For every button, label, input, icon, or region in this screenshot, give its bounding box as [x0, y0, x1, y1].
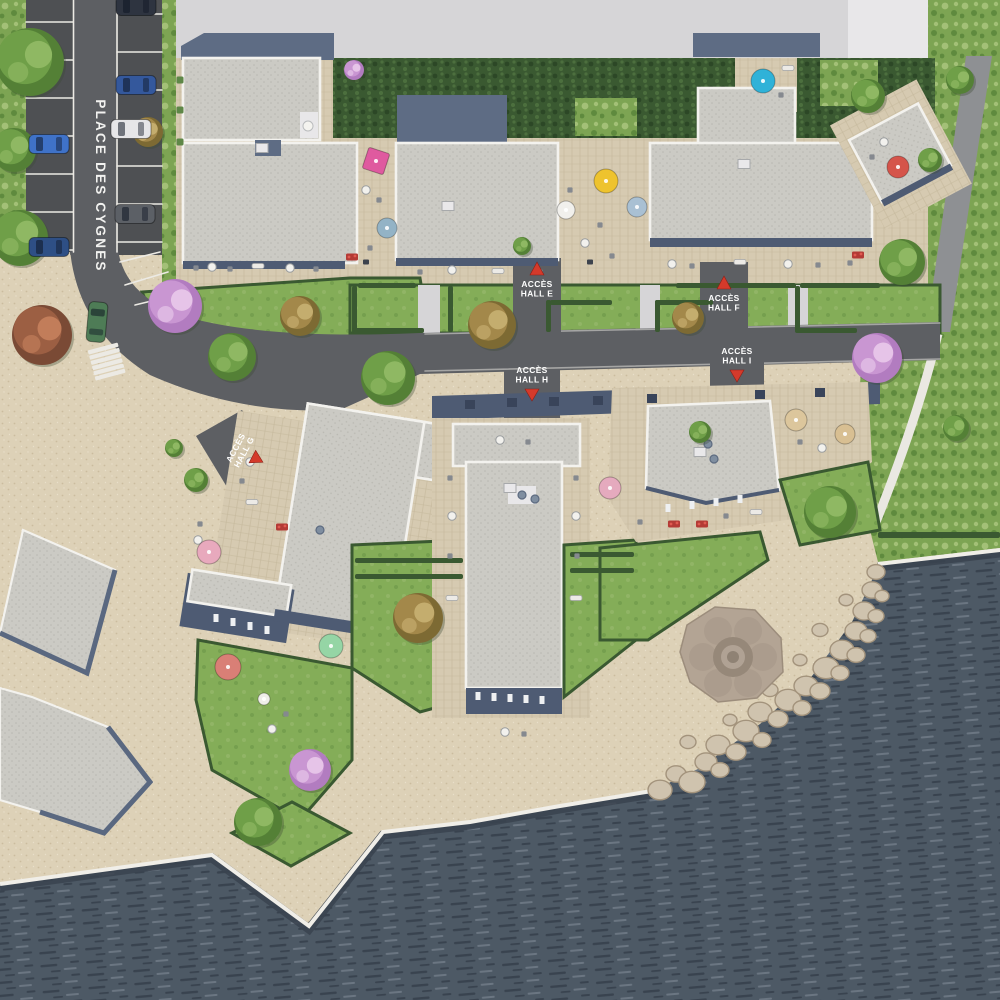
building-b-roof: [396, 143, 558, 260]
car-windshield: [36, 137, 43, 151]
boulder: [831, 666, 849, 681]
parasol-pole: [385, 226, 389, 230]
car-rear-window: [142, 207, 148, 221]
parasol: [197, 540, 221, 564]
car-windshield: [118, 122, 125, 136]
boulder: [812, 623, 828, 636]
grill: [587, 260, 593, 265]
car-body: [29, 238, 69, 257]
tree-highlight: [402, 618, 417, 633]
hedge-strip: [795, 286, 800, 332]
car-body: [115, 205, 155, 224]
table: [572, 512, 580, 520]
roof-skylight: [256, 144, 268, 153]
hedge-strip: [546, 300, 551, 332]
tree-highlight: [698, 425, 707, 434]
boulder: [868, 609, 884, 622]
parasol-pole: [794, 418, 798, 422]
roof-vent: [316, 526, 324, 534]
parasol: [594, 169, 618, 193]
tree-highlight: [826, 496, 847, 517]
chair: [797, 439, 802, 444]
rock-lobe: [689, 643, 717, 671]
chair: [417, 269, 422, 274]
building-a2-roof: [183, 143, 357, 263]
car: [116, 76, 156, 95]
lounge-chair: [252, 264, 264, 269]
flower: [284, 525, 287, 528]
hedge-strip: [800, 283, 880, 288]
tree-highlight: [2, 238, 19, 255]
tree-highlight: [242, 822, 256, 836]
tree-highlight: [686, 308, 699, 321]
chair: [283, 711, 288, 716]
tree-highlight: [861, 358, 876, 373]
car-rear-window: [143, 0, 149, 13]
building-i-roof: [646, 401, 779, 503]
parasol-pole: [374, 159, 378, 163]
tree-highlight: [857, 96, 867, 106]
chair: [609, 253, 614, 258]
boulder: [768, 711, 788, 727]
chair: [227, 266, 232, 271]
balcony-divider: [248, 622, 253, 630]
balcony-divider: [508, 694, 513, 702]
tree-highlight: [678, 318, 688, 328]
entrance-door: [755, 390, 765, 399]
car: [115, 205, 155, 224]
parasol: [319, 634, 343, 658]
parasol: [215, 654, 241, 680]
white-prop: [303, 121, 313, 131]
tree-highlight: [297, 304, 313, 320]
chair: [193, 265, 198, 270]
lounge-chair: [734, 260, 746, 265]
tree-highlight: [0, 150, 13, 163]
tree-highlight: [488, 310, 507, 329]
hedge-strip: [352, 328, 424, 333]
flower: [278, 526, 281, 529]
tree-highlight: [8, 62, 28, 82]
building-h-south-fascia: [466, 688, 562, 714]
entrance-door: [549, 397, 559, 406]
tree-highlight: [173, 442, 180, 449]
tree-highlight: [11, 136, 29, 154]
flower: [348, 256, 351, 259]
car: [116, 0, 156, 16]
entrance-door: [507, 398, 517, 407]
car: [29, 135, 69, 154]
building-a-attic-roof: [181, 33, 334, 60]
table: [501, 728, 509, 736]
tree-highlight: [171, 289, 193, 311]
hedge-strip: [355, 558, 463, 563]
boulder: [711, 763, 729, 778]
tree-highlight: [296, 770, 309, 783]
tree-highlight: [887, 262, 901, 276]
boulder: [679, 771, 705, 792]
car-windshield: [91, 308, 106, 316]
boulder: [793, 654, 807, 665]
car-body: [116, 76, 156, 95]
building-c-roof: [650, 143, 872, 240]
tree-highlight: [958, 71, 969, 82]
entrance-door: [815, 388, 825, 397]
chair: [239, 478, 244, 483]
balcony-divider: [492, 693, 497, 701]
car-body: [86, 301, 108, 343]
boulder: [648, 780, 672, 800]
balcony-divider: [231, 618, 236, 626]
car: [29, 238, 69, 257]
boulder: [847, 648, 865, 663]
tree-highlight: [922, 160, 929, 167]
lounge-chair: [492, 269, 504, 274]
parasol: [599, 477, 621, 499]
entrance-door: [465, 400, 475, 409]
parasol-pole: [604, 179, 608, 183]
tree-highlight: [194, 473, 204, 483]
lounge-chair: [446, 596, 458, 601]
tree-highlight: [307, 757, 324, 774]
site-plan-render: PLACE DES CYGNES ACCÈSHALL EACCÈSHALL FA…: [0, 0, 1000, 1000]
building-b-attic-roof: [397, 95, 507, 143]
parasol: [751, 69, 775, 93]
parasol-pole: [207, 550, 211, 554]
table: [268, 725, 276, 733]
planter: [177, 139, 184, 146]
balcony-divider: [738, 495, 743, 503]
boulder: [726, 744, 746, 760]
roof-skylight: [504, 484, 516, 493]
roof-skylight: [738, 160, 750, 169]
flower: [698, 523, 701, 526]
car-rear-window: [56, 137, 62, 151]
access-label-text: ACCÈSHALL H: [516, 364, 549, 385]
table: [362, 186, 370, 194]
building-b-fascia: [396, 258, 558, 266]
balcony-divider: [666, 504, 671, 512]
car-rear-window: [138, 122, 144, 136]
boulder: [867, 565, 885, 580]
hedge-strip: [676, 283, 796, 288]
chair: [313, 266, 318, 271]
chair: [521, 731, 526, 736]
building-c-attic-roof: [693, 33, 820, 57]
lounge-chair: [750, 510, 762, 515]
balcony-divider: [214, 614, 219, 622]
tree-highlight: [216, 357, 230, 371]
car-rear-window: [143, 78, 149, 92]
roof-vent: [710, 455, 718, 463]
tree-highlight: [865, 85, 879, 99]
boulder: [839, 594, 853, 605]
parasol-pole: [896, 165, 900, 169]
table: [818, 444, 826, 452]
chair: [637, 519, 642, 524]
hedge-strip: [655, 300, 660, 332]
tree-highlight: [168, 448, 173, 453]
tree-highlight: [813, 512, 829, 528]
tree-highlight: [287, 316, 299, 328]
parasol: [785, 409, 807, 431]
chair: [447, 475, 452, 480]
balcony-divider: [690, 501, 695, 509]
flower: [354, 255, 357, 258]
roof-skylight: [694, 448, 706, 457]
car-windshield: [123, 0, 130, 13]
table: [880, 138, 888, 146]
hedge-strip: [358, 283, 416, 288]
table: [581, 239, 589, 247]
table: [208, 263, 216, 271]
parasol-pole: [329, 644, 333, 648]
balcony-divider: [265, 626, 270, 634]
tree-highlight: [25, 41, 52, 68]
roof-vent: [531, 495, 539, 503]
roof-vent: [518, 491, 526, 499]
parasol: [557, 201, 575, 219]
access-label-text: ACCÈSHALL E: [521, 278, 554, 299]
roof-skylight: [442, 202, 454, 211]
parasol-pole: [262, 697, 266, 701]
car-rear-window: [56, 240, 62, 254]
entrance-door: [593, 396, 603, 405]
tree-highlight: [188, 480, 195, 487]
lounge-chair: [246, 500, 258, 505]
parasol: [887, 156, 909, 178]
chair: [574, 553, 579, 558]
chair: [197, 521, 202, 526]
table: [448, 266, 456, 274]
tree-highlight: [951, 80, 959, 88]
car: [86, 301, 108, 343]
hedge-strip: [570, 568, 634, 573]
table: [286, 264, 294, 272]
boulder: [860, 629, 876, 642]
lounge-chair: [570, 596, 582, 601]
tree-highlight: [948, 428, 956, 436]
chair: [447, 553, 452, 558]
car-body: [29, 135, 69, 154]
parking-grass-strip: [162, 0, 176, 288]
flower: [704, 522, 707, 525]
building-h-head-roof: [453, 424, 580, 466]
tree-highlight: [873, 343, 893, 363]
hedge-strip: [355, 574, 463, 579]
chair: [723, 513, 728, 518]
entrance-door: [647, 394, 657, 403]
tree-highlight: [254, 807, 273, 826]
tree-highlight: [228, 342, 247, 361]
chair: [869, 154, 874, 159]
hedge-strip: [550, 300, 612, 305]
chair: [847, 260, 852, 265]
tree-highlight: [370, 378, 386, 394]
flower: [854, 254, 857, 257]
access-label-text: ACCÈSHALL F: [708, 292, 740, 313]
tree-highlight: [521, 240, 528, 247]
parasol-pole: [608, 486, 612, 490]
car-windshield: [122, 207, 129, 221]
tree-highlight: [899, 248, 917, 266]
balcony-divider: [524, 695, 529, 703]
chair: [525, 439, 530, 444]
tree-highlight: [348, 70, 354, 76]
parasol: [835, 424, 855, 444]
chair: [689, 263, 694, 268]
lounge-chair: [782, 66, 794, 71]
building-a1-roof: [183, 58, 320, 140]
tree-highlight: [954, 420, 964, 430]
parasol: [627, 197, 647, 217]
tree-highlight: [516, 246, 521, 251]
boulder: [680, 735, 696, 748]
building-c-fascia: [650, 238, 872, 247]
hedge-strip: [878, 532, 1000, 538]
tree-highlight: [476, 325, 490, 339]
street-name-label: PLACE DES CYGNES: [93, 99, 108, 272]
parasol: [377, 218, 397, 238]
walk-strip-1: [418, 285, 440, 333]
flower: [860, 253, 863, 256]
parasol-pole: [635, 205, 639, 209]
table: [496, 436, 504, 444]
car-rear-window: [89, 328, 103, 335]
car-body: [116, 0, 156, 16]
parasol-pole: [761, 79, 765, 83]
hedge-gap-1: [575, 98, 637, 136]
table: [784, 260, 792, 268]
planter: [177, 107, 184, 114]
tree-highlight: [693, 432, 700, 439]
rock-lobe: [749, 643, 777, 671]
flower: [670, 523, 673, 526]
boulder: [810, 683, 830, 699]
table: [448, 512, 456, 520]
car: [111, 120, 151, 139]
chair: [567, 187, 572, 192]
chair: [573, 475, 578, 480]
balcony-divider: [714, 498, 719, 506]
chair: [597, 222, 602, 227]
car-windshield: [36, 240, 43, 254]
chair: [376, 197, 381, 202]
parasol: [258, 693, 270, 705]
car-body: [111, 120, 151, 139]
boulder: [723, 714, 737, 725]
car-windshield: [123, 78, 130, 92]
parasol-pole: [564, 208, 568, 212]
site-plan-svg: PLACE DES CYGNES ACCÈSHALL EACCÈSHALL FA…: [0, 0, 1000, 1000]
tree-highlight: [414, 603, 434, 623]
chair: [778, 92, 783, 97]
hedge-strip: [352, 286, 357, 332]
rock-hole: [727, 651, 739, 663]
balcony-divider: [540, 696, 545, 704]
table: [668, 260, 676, 268]
boulder: [793, 701, 811, 716]
parasol-pole: [226, 665, 230, 669]
boulder: [753, 733, 771, 748]
tree-highlight: [38, 316, 62, 340]
tree-highlight: [353, 64, 361, 72]
chair: [815, 262, 820, 267]
boulder: [875, 590, 889, 601]
tree-highlight: [23, 335, 41, 353]
balcony-divider: [476, 692, 481, 700]
tree-highlight: [928, 153, 938, 163]
flower: [676, 522, 679, 525]
access-label-text: ACCÈSHALL I: [721, 345, 752, 366]
hedge-strip: [795, 328, 857, 333]
tree-highlight: [384, 361, 406, 383]
chair: [367, 245, 372, 250]
tree-highlight: [157, 306, 173, 322]
parasol-pole: [843, 432, 847, 436]
hedge-strip: [448, 286, 453, 332]
grill: [363, 260, 369, 265]
planter: [177, 77, 184, 84]
top-right-slab: [848, 0, 936, 58]
